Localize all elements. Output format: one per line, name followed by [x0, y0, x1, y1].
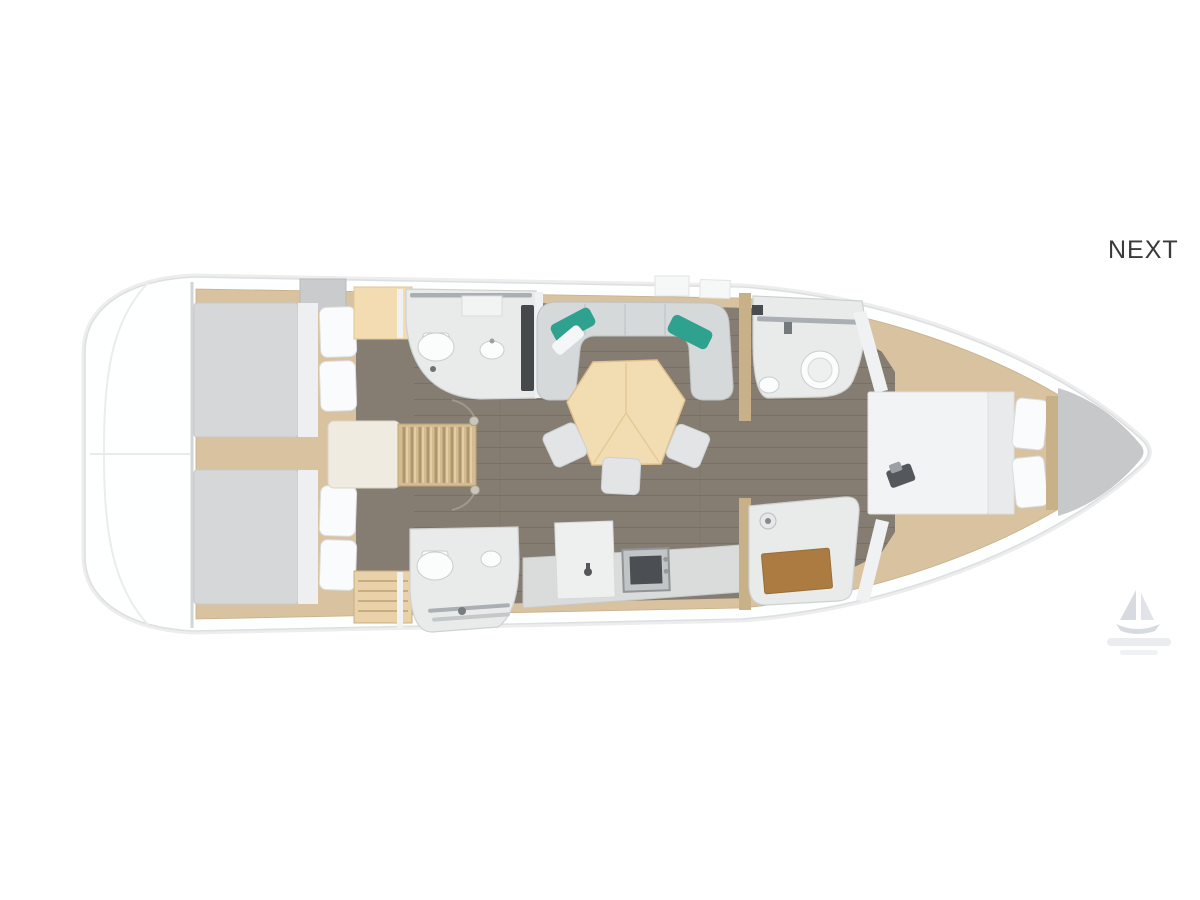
forward-bulkhead	[739, 293, 751, 421]
deck-hatch	[655, 276, 689, 296]
forward-shower	[749, 497, 859, 605]
tv-panel	[521, 305, 534, 391]
deck-hatch	[700, 279, 731, 298]
headboard	[1046, 396, 1058, 510]
toilet	[417, 552, 453, 580]
bulkhead-wall	[397, 572, 403, 628]
sink	[480, 341, 504, 359]
page: NEXT	[0, 0, 1200, 900]
head-starboard-aft	[410, 527, 519, 632]
floorplan-svg	[0, 0, 1200, 900]
pillow	[319, 539, 357, 590]
double-bed	[194, 303, 298, 437]
teak-grate	[761, 548, 832, 594]
dining-chair	[601, 457, 641, 495]
handrail-post	[470, 417, 479, 426]
bulkhead-wall	[397, 289, 403, 338]
double-bed	[194, 470, 298, 604]
pillow	[319, 485, 357, 536]
shower-head	[784, 322, 792, 334]
cabin-doorway-starboard	[356, 478, 414, 574]
yacht-floorplan-image[interactable]	[0, 0, 1200, 900]
bench-seat	[354, 571, 412, 623]
pillow	[1011, 397, 1048, 450]
toilet	[418, 333, 454, 361]
bed-foot-section	[988, 392, 1014, 514]
sink	[481, 551, 501, 567]
watermark-text-line	[1107, 638, 1171, 646]
pillow	[319, 306, 357, 357]
shelf	[462, 296, 502, 316]
floor-drain	[430, 366, 436, 372]
jib-sail	[1141, 593, 1154, 620]
pillow	[319, 360, 357, 411]
shower-head	[458, 607, 466, 615]
sailboat-icon	[1098, 582, 1182, 658]
vanity-desk	[354, 287, 412, 339]
stove	[622, 548, 669, 592]
boat-hull	[1116, 624, 1160, 634]
head-forward	[752, 296, 865, 398]
sink	[759, 377, 779, 393]
cabin-doorway-port	[356, 336, 414, 432]
vent-box	[752, 305, 763, 315]
pillow	[1011, 455, 1048, 508]
main-sail	[1120, 590, 1136, 620]
bed-frame	[298, 470, 318, 604]
galley-island	[555, 521, 616, 599]
handrail-post	[471, 486, 480, 495]
bed-frame	[298, 303, 318, 437]
stair-landing	[328, 421, 400, 488]
charter-watermark	[1098, 582, 1182, 658]
galley-sink-faucet	[584, 568, 592, 576]
faucet	[490, 339, 495, 344]
island-bed	[868, 392, 988, 514]
watermark-text-line	[1120, 650, 1158, 655]
